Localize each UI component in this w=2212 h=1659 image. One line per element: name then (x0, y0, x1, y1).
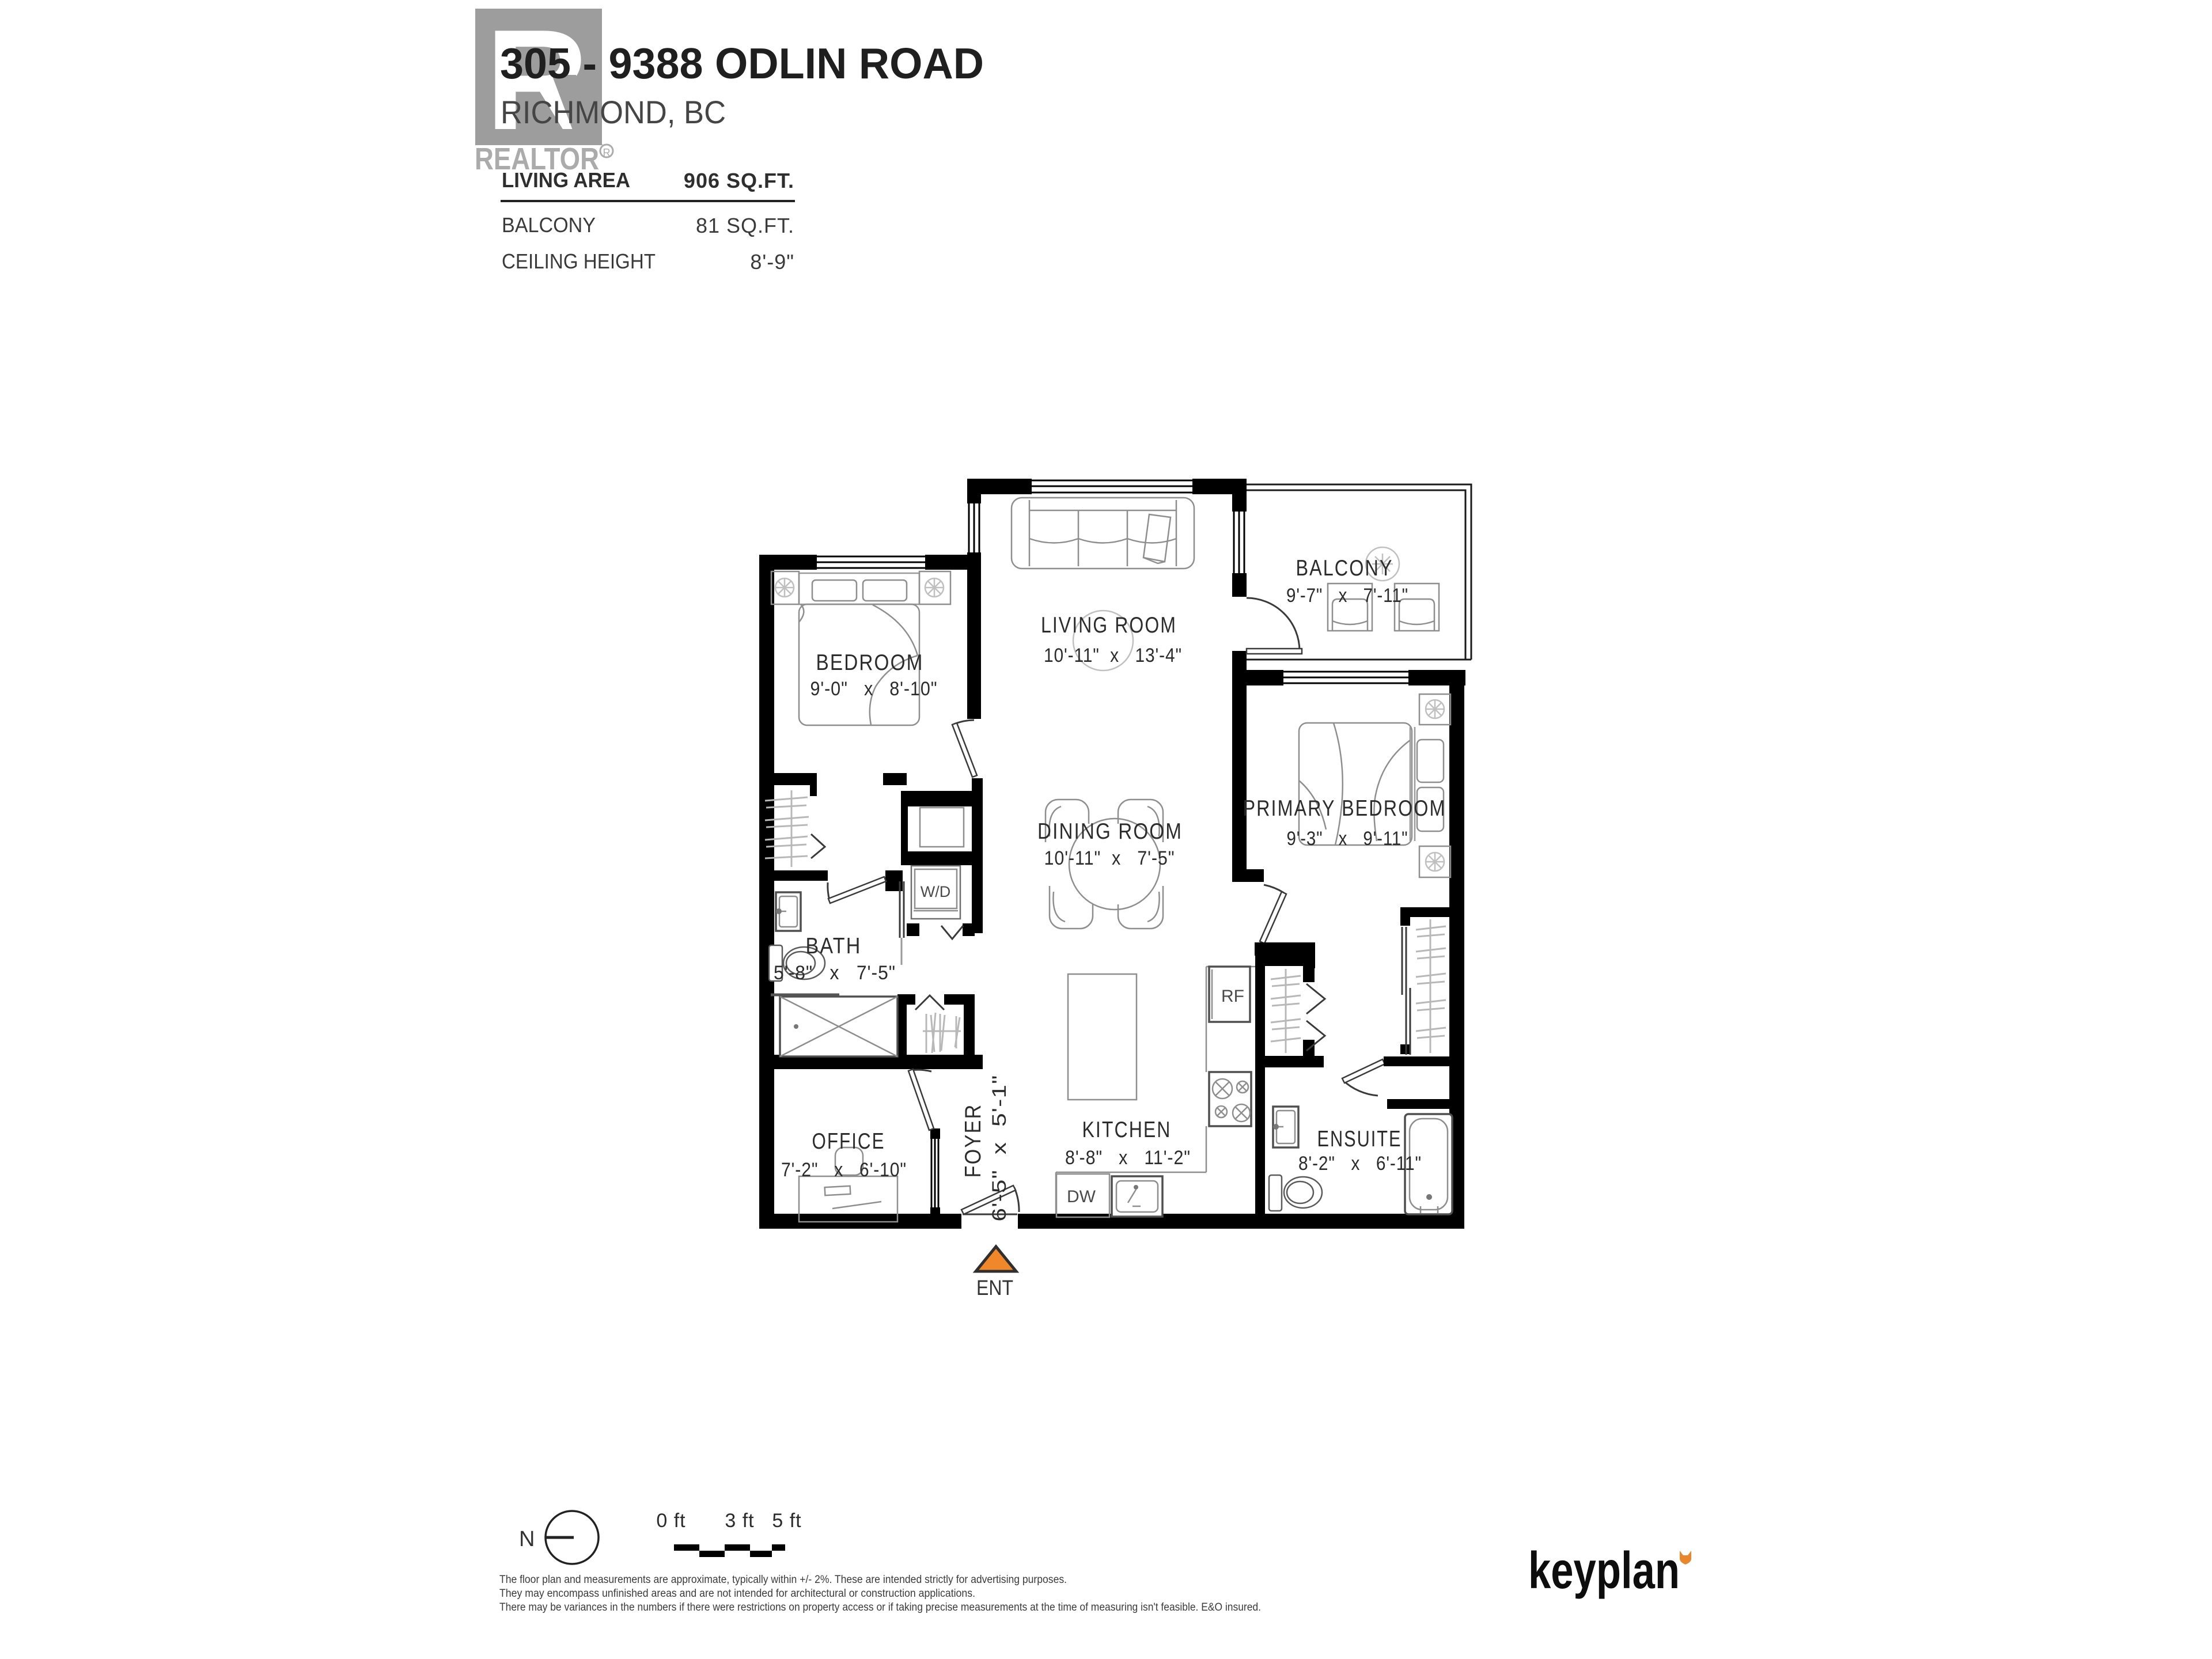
svg-text:OFFICE: OFFICE (812, 1129, 885, 1154)
svg-text:RF: RF (1221, 987, 1244, 1006)
svg-text:There may be variances in the: There may be variances in the numbers if… (499, 1601, 1261, 1613)
svg-text:10'-11" x 7'-5": 10'-11" x 7'-5" (1044, 847, 1175, 869)
svg-text:W/D: W/D (921, 883, 950, 900)
svg-text:6'-5" x 5'-1": 6'-5" x 5'-1" (988, 1075, 1010, 1222)
svg-text:PRIMARY BEDROOM: PRIMARY BEDROOM (1243, 796, 1446, 821)
svg-text:N: N (519, 1527, 535, 1551)
svg-text:8'-2" x 6'-11": 8'-2" x 6'-11" (1298, 1153, 1422, 1175)
svg-text:7'-2" x 6'-10": 7'-2" x 6'-10" (781, 1159, 907, 1181)
svg-text:The floor plan and measurement: The floor plan and measurements are appr… (499, 1574, 1067, 1586)
svg-text:RICHMOND, BC: RICHMOND, BC (501, 94, 726, 130)
svg-text:8'-9": 8'-9" (750, 250, 794, 274)
svg-text:8'-8" x 11'-2": 8'-8" x 11'-2" (1065, 1147, 1191, 1169)
svg-text:81 SQ.FT.: 81 SQ.FT. (696, 214, 794, 237)
svg-text:9'-0" x 8'-10": 9'-0" x 8'-10" (810, 678, 938, 700)
svg-text:DW: DW (1067, 1187, 1096, 1206)
svg-text:ENT: ENT (976, 1276, 1013, 1300)
svg-text:0 ft: 0 ft (656, 1510, 685, 1532)
svg-text:5 ft: 5 ft (772, 1510, 801, 1532)
svg-text:ENSUITE: ENSUITE (1317, 1127, 1402, 1152)
svg-text:DINING ROOM: DINING ROOM (1037, 819, 1183, 844)
svg-text:BALCONY: BALCONY (502, 213, 596, 237)
svg-text:3 ft: 3 ft (725, 1510, 754, 1532)
svg-text:305 - 9388 ODLIN ROAD: 305 - 9388 ODLIN ROAD (500, 39, 984, 88)
svg-text:BALCONY: BALCONY (1296, 556, 1393, 581)
svg-text:BATH: BATH (806, 934, 862, 959)
svg-text:R: R (603, 147, 611, 158)
svg-text:KITCHEN: KITCHEN (1082, 1118, 1172, 1142)
svg-text:BEDROOM: BEDROOM (816, 650, 924, 675)
svg-text:9'-7" x 7'-11": 9'-7" x 7'-11" (1286, 585, 1408, 607)
svg-text:LIVING ROOM: LIVING ROOM (1041, 613, 1177, 638)
svg-text:10'-11" x 13'-4": 10'-11" x 13'-4" (1044, 645, 1182, 666)
svg-text:9'-3" x 9'-11": 9'-3" x 9'-11" (1287, 828, 1408, 850)
svg-text:LIVING AREA: LIVING AREA (502, 168, 630, 192)
svg-text:CEILING HEIGHT: CEILING HEIGHT (502, 249, 656, 273)
svg-text:5'-8" x 7'-5": 5'-8" x 7'-5" (774, 962, 896, 984)
svg-text:FOYER: FOYER (961, 1104, 986, 1178)
svg-text:keyplan: keyplan (1528, 1542, 1680, 1600)
svg-text:906 SQ.FT.: 906 SQ.FT. (684, 169, 794, 192)
svg-text:They may encompass unfinished: They may encompass unfinished areas and … (499, 1588, 975, 1600)
